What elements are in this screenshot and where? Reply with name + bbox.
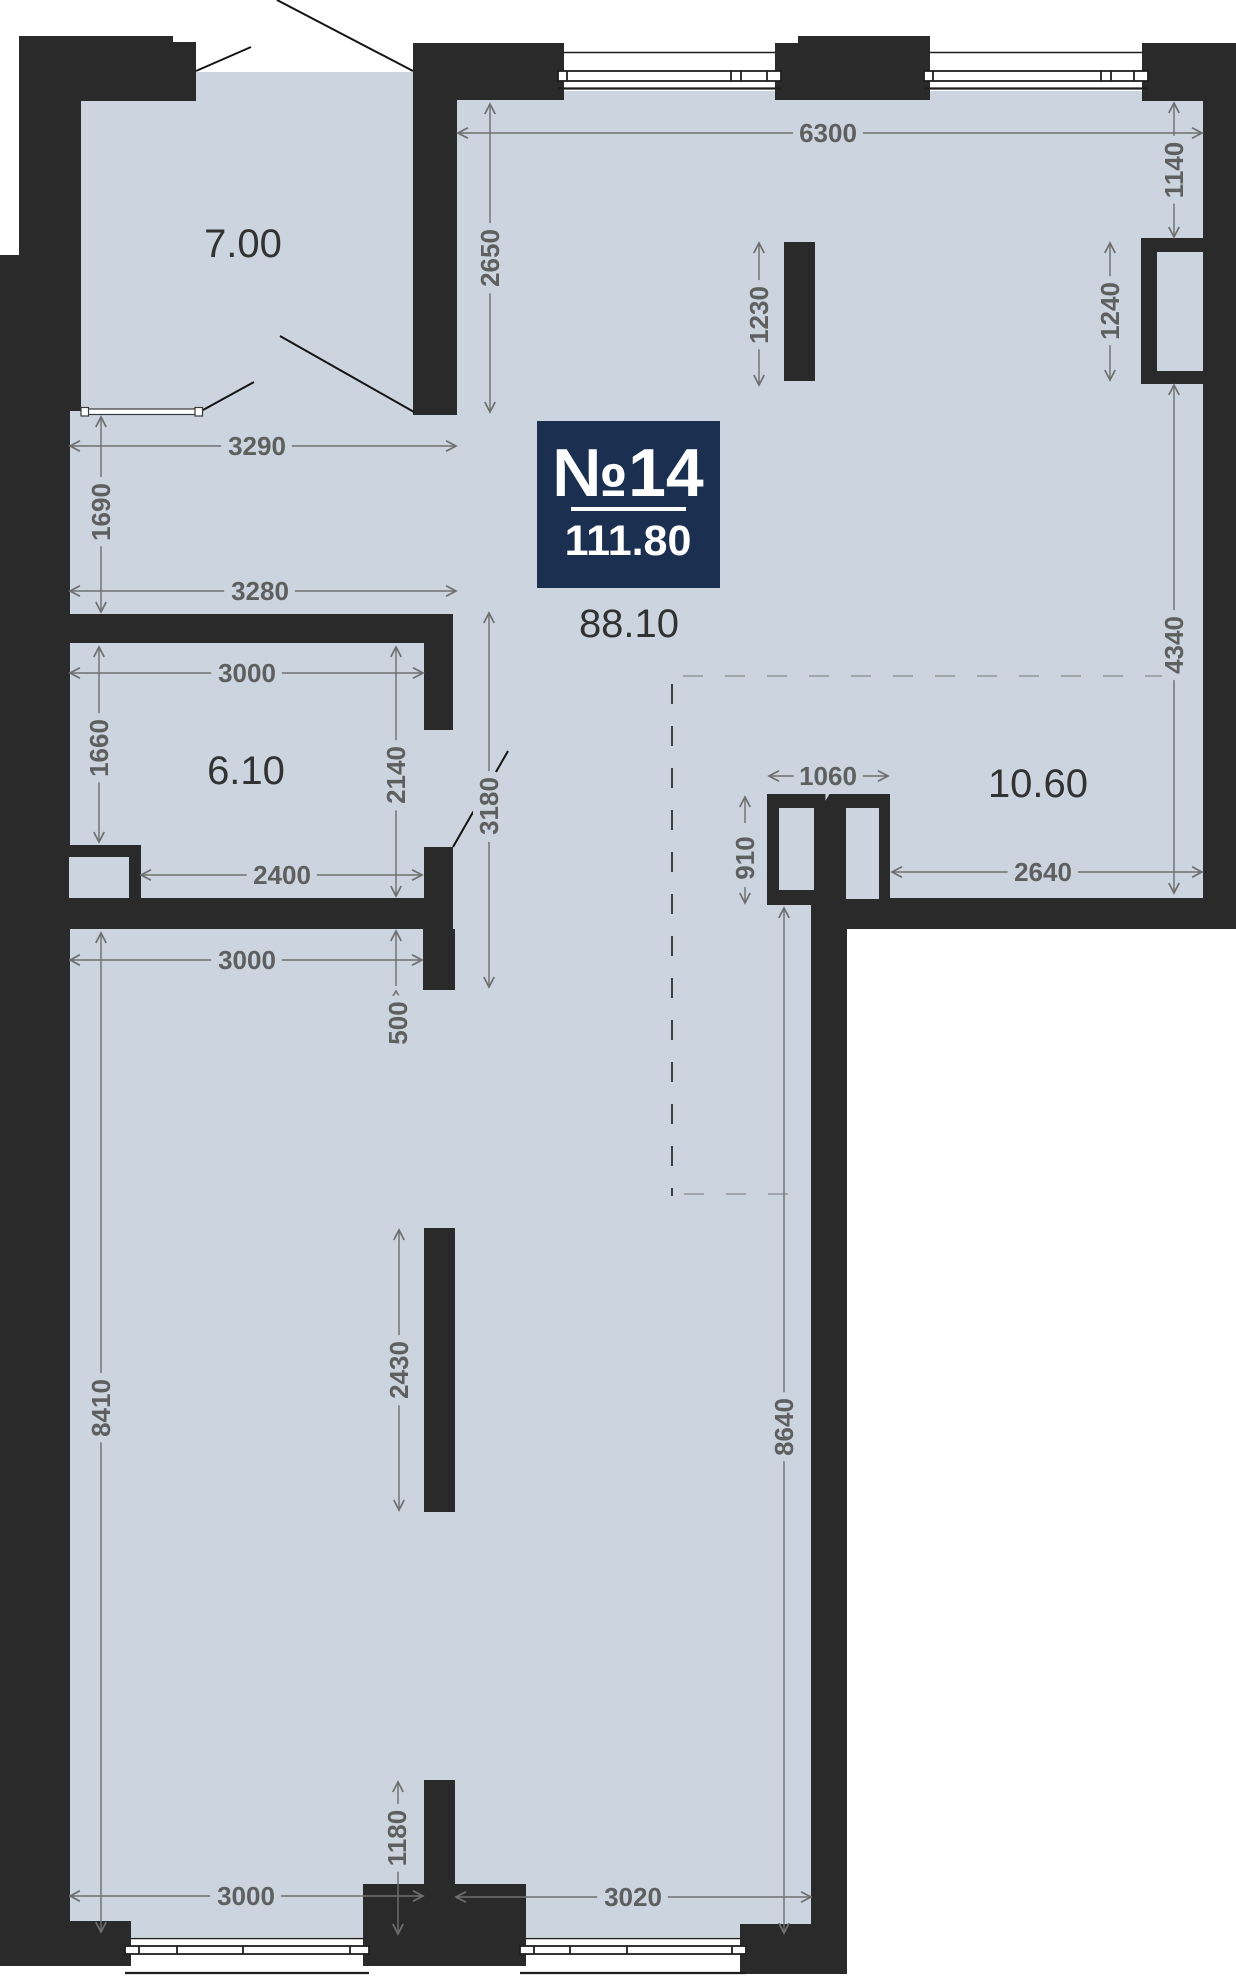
- svg-text:3020: 3020: [604, 1882, 662, 1912]
- svg-text:3280: 3280: [231, 576, 289, 606]
- svg-text:2430: 2430: [384, 1341, 414, 1399]
- svg-text:10.60: 10.60: [988, 762, 1088, 806]
- svg-text:1690: 1690: [86, 483, 116, 541]
- svg-text:№14: №14: [552, 435, 704, 511]
- svg-text:1180: 1180: [382, 1810, 412, 1866]
- svg-text:1140: 1140: [1159, 142, 1189, 198]
- svg-text:3000: 3000: [217, 1881, 275, 1911]
- svg-text:1240: 1240: [1095, 282, 1125, 340]
- svg-text:111.80: 111.80: [565, 517, 692, 565]
- svg-text:2400: 2400: [253, 860, 311, 890]
- svg-text:2640: 2640: [1014, 857, 1072, 887]
- svg-text:7.00: 7.00: [204, 222, 282, 266]
- svg-text:500: 500: [383, 1001, 413, 1044]
- svg-text:4340: 4340: [1159, 616, 1189, 674]
- svg-text:6300: 6300: [799, 118, 857, 148]
- svg-text:2140: 2140: [381, 746, 411, 804]
- svg-text:1060: 1060: [799, 761, 857, 791]
- svg-text:3000: 3000: [218, 658, 276, 688]
- svg-text:88.10: 88.10: [579, 602, 679, 646]
- svg-text:1230: 1230: [744, 286, 774, 344]
- svg-text:2650: 2650: [475, 229, 505, 287]
- svg-text:3290: 3290: [228, 431, 286, 461]
- svg-text:6.10: 6.10: [207, 749, 285, 793]
- svg-text:1660: 1660: [84, 719, 114, 777]
- svg-text:8410: 8410: [86, 1379, 116, 1437]
- svg-text:3000: 3000: [218, 945, 276, 975]
- svg-text:3180: 3180: [474, 777, 504, 835]
- svg-text:8640: 8640: [769, 1398, 799, 1456]
- svg-text:910: 910: [730, 836, 760, 879]
